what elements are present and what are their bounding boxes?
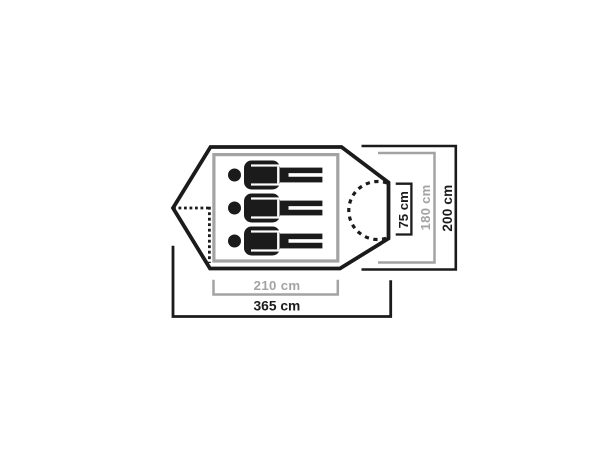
svg-text:180 cm: 180 cm bbox=[418, 184, 433, 230]
svg-text:210 cm: 210 cm bbox=[254, 278, 301, 293]
svg-text:365 cm: 365 cm bbox=[254, 299, 301, 314]
svg-text:75 cm: 75 cm bbox=[396, 191, 411, 228]
svg-text:200 cm: 200 cm bbox=[440, 185, 455, 232]
